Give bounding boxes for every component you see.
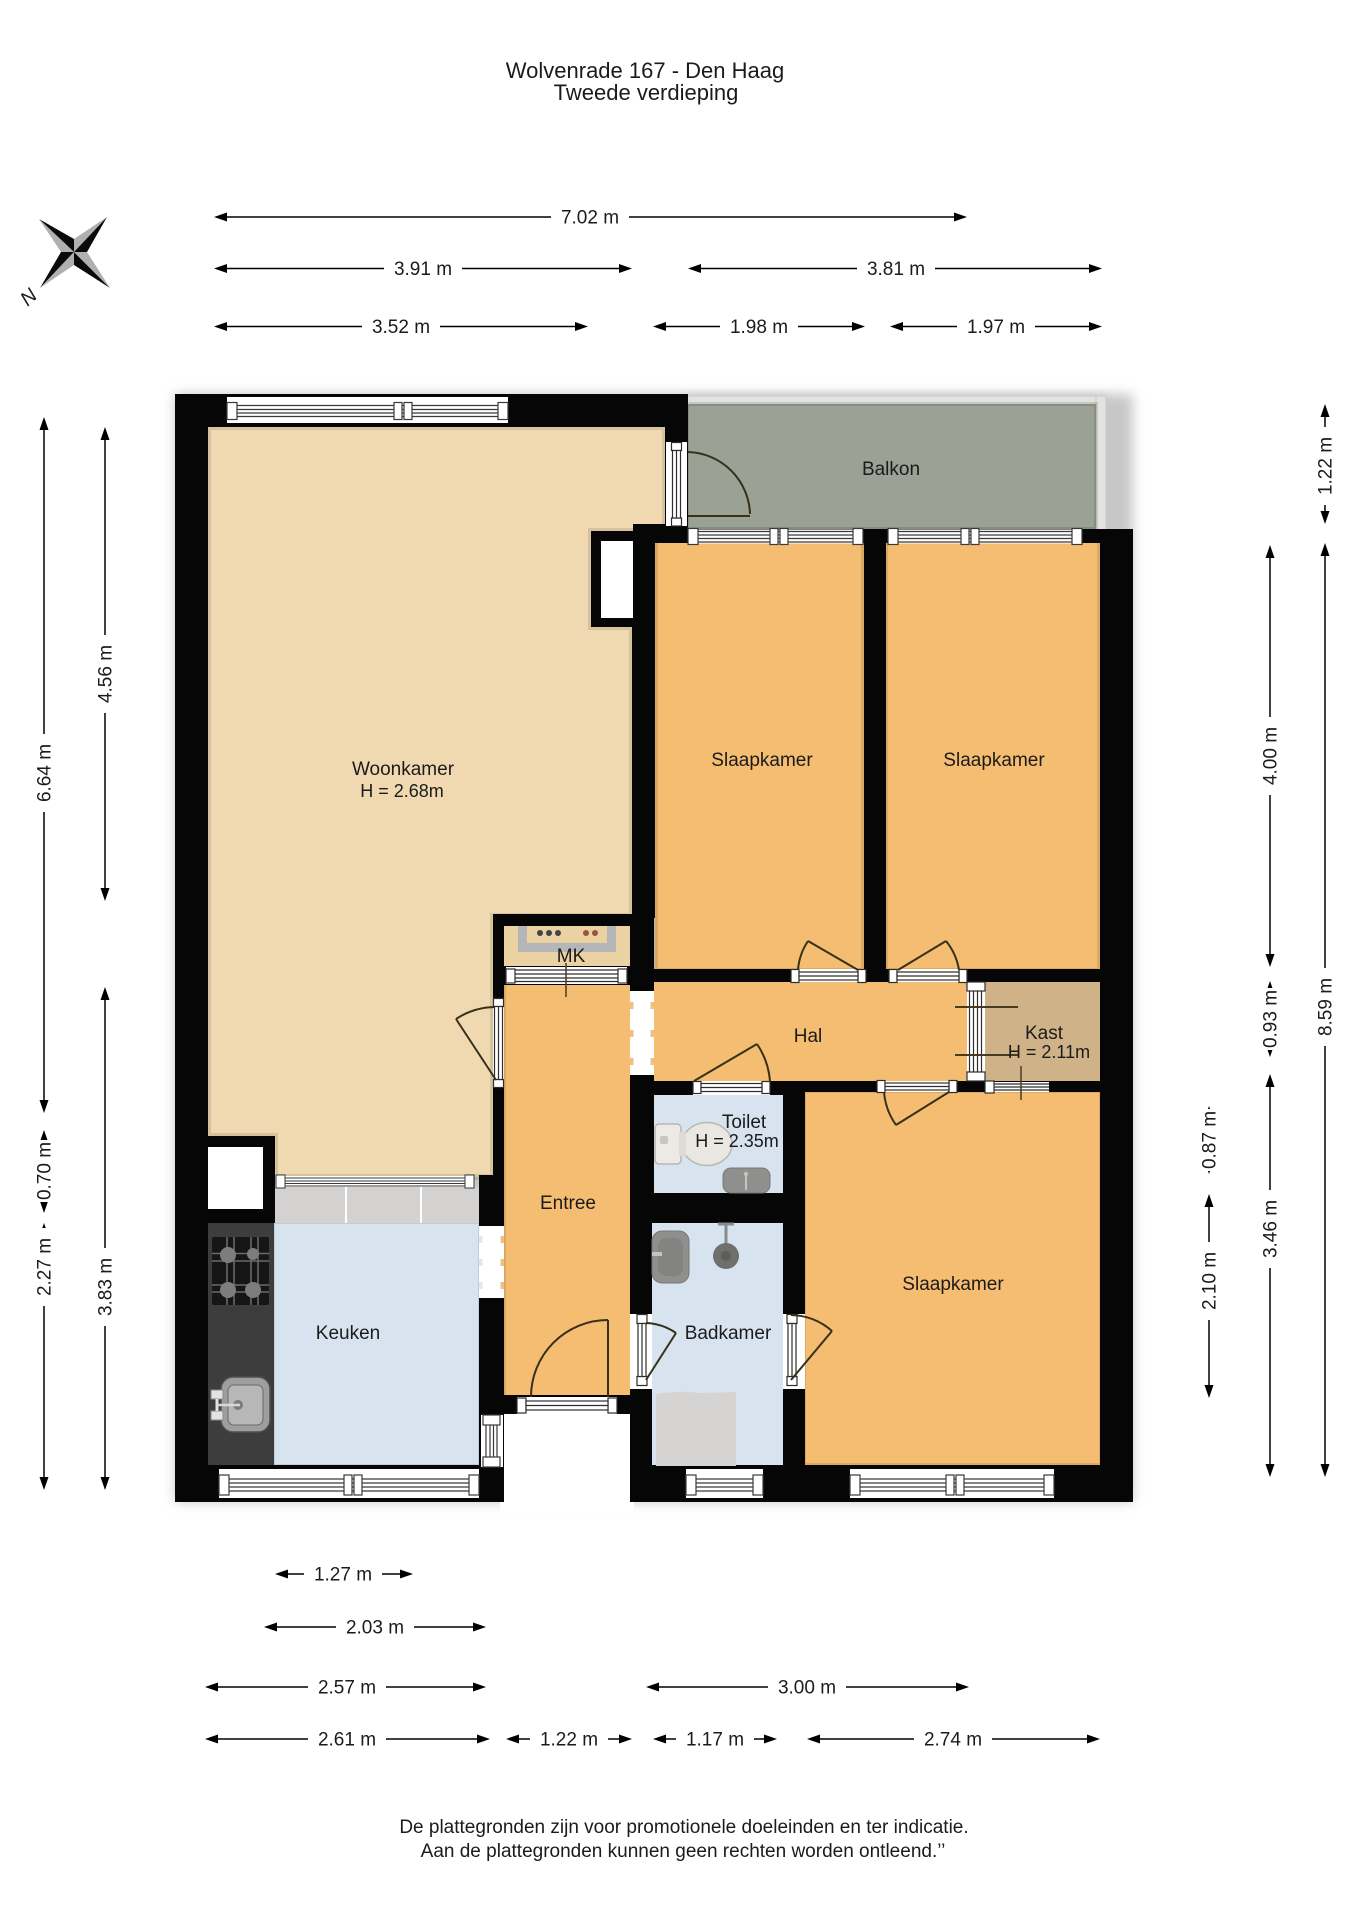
- svg-text:1.97 m: 1.97 m: [967, 317, 1025, 338]
- svg-text:6.64 m: 6.64 m: [35, 744, 56, 802]
- svg-text:2.57 m: 2.57 m: [318, 1678, 376, 1699]
- svg-text:0.70 m: 0.70 m: [35, 1142, 56, 1200]
- svg-text:2.61 m: 2.61 m: [318, 1730, 376, 1751]
- svg-text:4.00 m: 4.00 m: [1261, 727, 1282, 785]
- svg-text:Slaapkamer: Slaapkamer: [902, 1274, 1004, 1295]
- svg-text:N: N: [16, 284, 42, 310]
- svg-text:3.52 m: 3.52 m: [372, 317, 430, 338]
- svg-text:3.00 m: 3.00 m: [778, 1678, 836, 1699]
- svg-text:1.17 m: 1.17 m: [686, 1730, 744, 1751]
- svg-text:3.46 m: 3.46 m: [1261, 1200, 1282, 1258]
- svg-text:Woonkamer: Woonkamer: [352, 759, 455, 780]
- svg-text:Slaapkamer: Slaapkamer: [711, 750, 813, 771]
- svg-text:3.91 m: 3.91 m: [394, 259, 452, 280]
- svg-text:1.22 m: 1.22 m: [540, 1730, 598, 1751]
- svg-text:1.98 m: 1.98 m: [730, 317, 788, 338]
- svg-text:1.27 m: 1.27 m: [314, 1565, 372, 1586]
- svg-text:8.59 m: 8.59 m: [1316, 978, 1337, 1036]
- svg-text:0.87 m: 0.87 m: [1200, 1111, 1221, 1169]
- svg-text:Badkamer: Badkamer: [685, 1323, 772, 1344]
- svg-text:Slaapkamer: Slaapkamer: [943, 750, 1045, 771]
- svg-text:Aan de plattegronden kunnen ge: Aan de plattegronden kunnen geen rechten…: [421, 1841, 946, 1862]
- svg-text:1.22 m: 1.22 m: [1316, 437, 1337, 495]
- svg-text:Toilet: Toilet: [722, 1112, 767, 1133]
- svg-text:2.74 m: 2.74 m: [924, 1730, 982, 1751]
- svg-text:Hal: Hal: [794, 1026, 823, 1047]
- svg-text:3.81 m: 3.81 m: [867, 259, 925, 280]
- svg-text:2.10 m: 2.10 m: [1200, 1252, 1221, 1310]
- svg-text:2.03 m: 2.03 m: [346, 1618, 404, 1639]
- svg-text:H = 2.35m: H = 2.35m: [695, 1131, 779, 1151]
- svg-text:4.56 m: 4.56 m: [96, 645, 117, 703]
- svg-text:3.83 m: 3.83 m: [96, 1258, 117, 1316]
- svg-text:0.93 m: 0.93 m: [1261, 990, 1282, 1048]
- svg-text:Kast: Kast: [1025, 1023, 1064, 1044]
- svg-text:H = 2.11m: H = 2.11m: [1008, 1042, 1090, 1062]
- svg-text:MK: MK: [557, 946, 586, 967]
- svg-text:H = 2.68m: H = 2.68m: [360, 781, 444, 801]
- svg-text:Entree: Entree: [540, 1193, 596, 1214]
- svg-text:7.02 m: 7.02 m: [561, 208, 619, 229]
- svg-text:Tweede verdieping: Tweede verdieping: [554, 80, 739, 105]
- svg-text:Balkon: Balkon: [862, 459, 920, 480]
- svg-text:2.27 m: 2.27 m: [35, 1238, 56, 1296]
- svg-text:Keuken: Keuken: [316, 1323, 380, 1344]
- svg-text:De plattegronden zijn voor pro: De plattegronden zijn voor promotionele …: [399, 1817, 968, 1838]
